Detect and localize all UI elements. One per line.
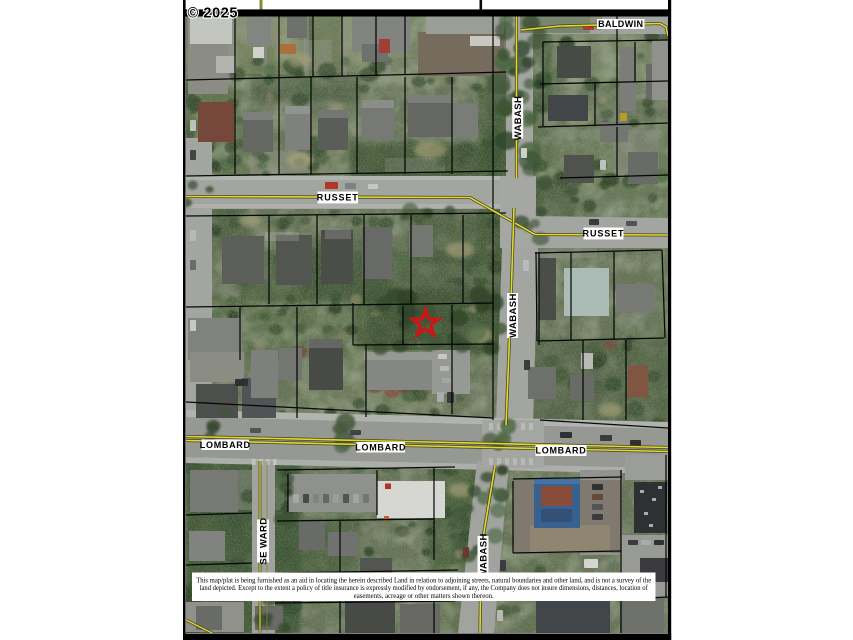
svg-text:LOMBARD: LOMBARD — [355, 442, 406, 452]
svg-text:This map/plat is being furnish: This map/plat is being furnished as an a… — [196, 577, 651, 584]
svg-text:land depicted. Except to the e: land depicted. Except to the extent a po… — [200, 585, 649, 592]
svg-text:© 2025: © 2025 — [188, 5, 239, 21]
svg-text:LOMBARD: LOMBARD — [536, 446, 587, 456]
svg-text:WABASH: WABASH — [513, 96, 524, 141]
svg-text:RUSSET: RUSSET — [317, 193, 359, 203]
svg-text:easements, acreage or other ma: easements, acreage or other matters show… — [354, 593, 494, 600]
svg-text:WABASH: WABASH — [508, 293, 519, 338]
svg-text:RUSSET: RUSSET — [583, 229, 625, 239]
svg-text:SE WARD: SE WARD — [258, 517, 269, 564]
svg-text:BALDWIN: BALDWIN — [598, 19, 643, 29]
svg-text:WABASH: WABASH — [478, 533, 489, 578]
svg-text:LOMBARD: LOMBARD — [200, 440, 251, 450]
